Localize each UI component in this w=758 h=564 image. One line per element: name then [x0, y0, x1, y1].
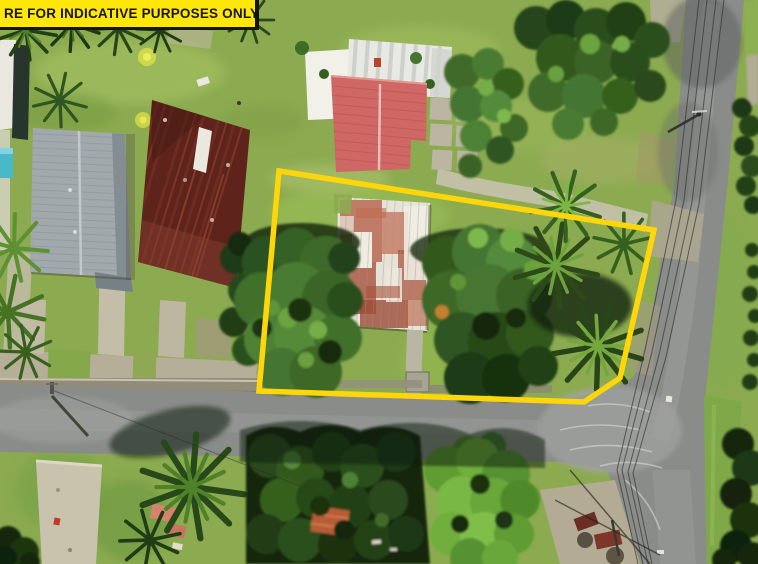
driveway-bottom-left: [36, 461, 102, 564]
gray-roof-building: [23, 128, 141, 292]
banner-text: RE FOR INDICATIVE PURPOSES ONLY: [4, 6, 259, 21]
road-marker: [666, 396, 673, 403]
indicative-banner: RE FOR INDICATIVE PURPOSES ONLY: [0, 0, 259, 30]
orange-shrub: [435, 305, 449, 319]
aerial-photo-page: RE FOR INDICATIVE PURPOSES ONLY: [0, 0, 758, 564]
red-object: [53, 518, 60, 526]
rooftop-red-object: [374, 58, 381, 67]
aerial-photo: [0, 0, 758, 564]
